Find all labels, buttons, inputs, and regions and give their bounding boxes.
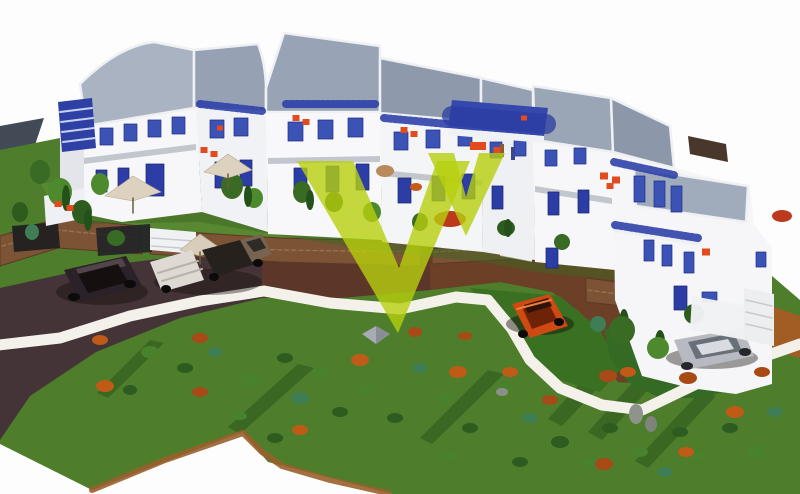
outdoor-chair	[55, 201, 62, 207]
vegetation	[629, 404, 643, 424]
vegetation	[679, 372, 697, 384]
vegetation	[672, 427, 688, 437]
vegetation	[192, 333, 208, 343]
vegetation	[312, 367, 328, 377]
vegetation	[504, 219, 512, 237]
vegetation	[177, 363, 193, 373]
window	[348, 118, 363, 137]
vegetation	[512, 457, 528, 467]
outdoor-chair	[607, 183, 614, 189]
outdoor-chair	[702, 249, 710, 256]
vegetation	[30, 160, 50, 184]
vegetation	[413, 363, 427, 373]
outdoor-chair	[217, 126, 223, 131]
vegetation	[542, 395, 558, 405]
silver-car-wheel	[739, 348, 751, 356]
door	[578, 190, 589, 213]
vegetation	[609, 316, 635, 344]
vegetation	[233, 412, 247, 420]
outdoor-chair	[470, 142, 486, 150]
vegetation	[632, 447, 648, 457]
door	[546, 248, 558, 268]
vegetation	[502, 367, 518, 377]
window	[684, 252, 694, 273]
vegetation	[410, 183, 422, 191]
vegetation	[306, 190, 314, 210]
window	[100, 128, 113, 145]
person	[511, 147, 515, 160]
outdoor-chair	[293, 115, 300, 121]
vegetation	[208, 347, 222, 357]
vegetation	[241, 374, 259, 386]
vegetation	[657, 467, 673, 477]
silver-car-wheel	[681, 362, 693, 370]
vegetation	[599, 370, 617, 382]
window	[172, 117, 185, 134]
door	[398, 178, 411, 203]
outdoor-chair	[401, 127, 408, 133]
vegetation	[462, 423, 478, 433]
vegetation	[358, 385, 372, 395]
window	[545, 150, 557, 166]
vegetation	[437, 393, 453, 403]
vegetation	[12, 202, 28, 222]
vegetation	[91, 173, 109, 195]
door	[492, 186, 503, 209]
vegetation	[590, 316, 606, 332]
roof-pergola-slats	[452, 116, 546, 124]
vegetation	[244, 185, 252, 207]
window	[756, 252, 766, 267]
vegetation	[595, 458, 613, 470]
window	[514, 140, 526, 156]
vegetation	[408, 327, 422, 337]
vegetation	[92, 335, 108, 345]
window	[426, 130, 440, 148]
vegetation	[647, 337, 669, 359]
window	[124, 124, 137, 141]
vegetation	[84, 209, 92, 231]
vegetation	[25, 224, 39, 240]
window	[634, 176, 645, 202]
vegetation	[522, 413, 538, 423]
vegetation	[351, 354, 369, 366]
vegetation	[442, 451, 458, 461]
vegetation	[123, 385, 137, 395]
outdoor-chair	[67, 205, 74, 211]
vegetation	[267, 433, 283, 443]
suv-wheel	[124, 280, 136, 288]
window	[644, 240, 654, 261]
render-canvas	[0, 0, 800, 494]
stair-pergola-blue	[58, 98, 96, 152]
vegetation	[387, 413, 403, 423]
vegetation	[602, 423, 618, 433]
window	[148, 120, 161, 137]
vegetation	[726, 406, 744, 418]
vegetation	[458, 332, 472, 340]
vegetation	[292, 425, 308, 435]
vegetation	[754, 367, 770, 377]
outdoor-chair	[411, 131, 418, 137]
outdoor-chair	[303, 119, 310, 125]
vegetation	[722, 423, 738, 433]
vegetation	[107, 230, 125, 246]
window	[318, 120, 333, 139]
architectural-render-image	[0, 0, 800, 494]
door	[548, 192, 559, 215]
outdoor-chair	[521, 116, 527, 121]
vegetation	[551, 436, 569, 448]
outdoor-chair	[600, 173, 608, 180]
vegetation	[554, 234, 570, 250]
vegetation	[496, 388, 508, 396]
vegetation	[678, 447, 694, 457]
vegetation	[141, 346, 159, 358]
vegetation	[332, 407, 348, 417]
outdoor-chair	[201, 147, 208, 153]
window	[574, 148, 586, 164]
outdoor-chair	[612, 177, 620, 184]
vegetation	[620, 367, 636, 377]
orange-car-wheel	[554, 318, 564, 326]
vegetation	[645, 416, 657, 432]
window	[288, 122, 303, 141]
window	[234, 118, 248, 136]
door	[674, 286, 687, 310]
vegetation	[772, 210, 792, 222]
vegetation	[291, 392, 309, 404]
outdoor-chair	[494, 147, 501, 153]
outdoor-chair	[211, 151, 218, 157]
vegetation	[192, 387, 208, 397]
window	[654, 181, 665, 207]
vegetation	[376, 165, 394, 177]
facade	[481, 122, 535, 260]
vegetation	[96, 380, 114, 392]
vegetation	[449, 366, 467, 378]
vegetation	[692, 451, 708, 461]
suv-wheel	[68, 293, 80, 301]
window	[662, 245, 672, 266]
window	[394, 132, 408, 150]
truck-wheel	[253, 259, 263, 267]
orange-car-wheel	[518, 330, 528, 338]
truck-wheel	[161, 285, 171, 293]
truck-wheel	[209, 273, 219, 281]
vegetation	[277, 353, 293, 363]
window	[671, 186, 682, 212]
vegetation	[746, 446, 764, 458]
vegetation	[767, 407, 783, 417]
